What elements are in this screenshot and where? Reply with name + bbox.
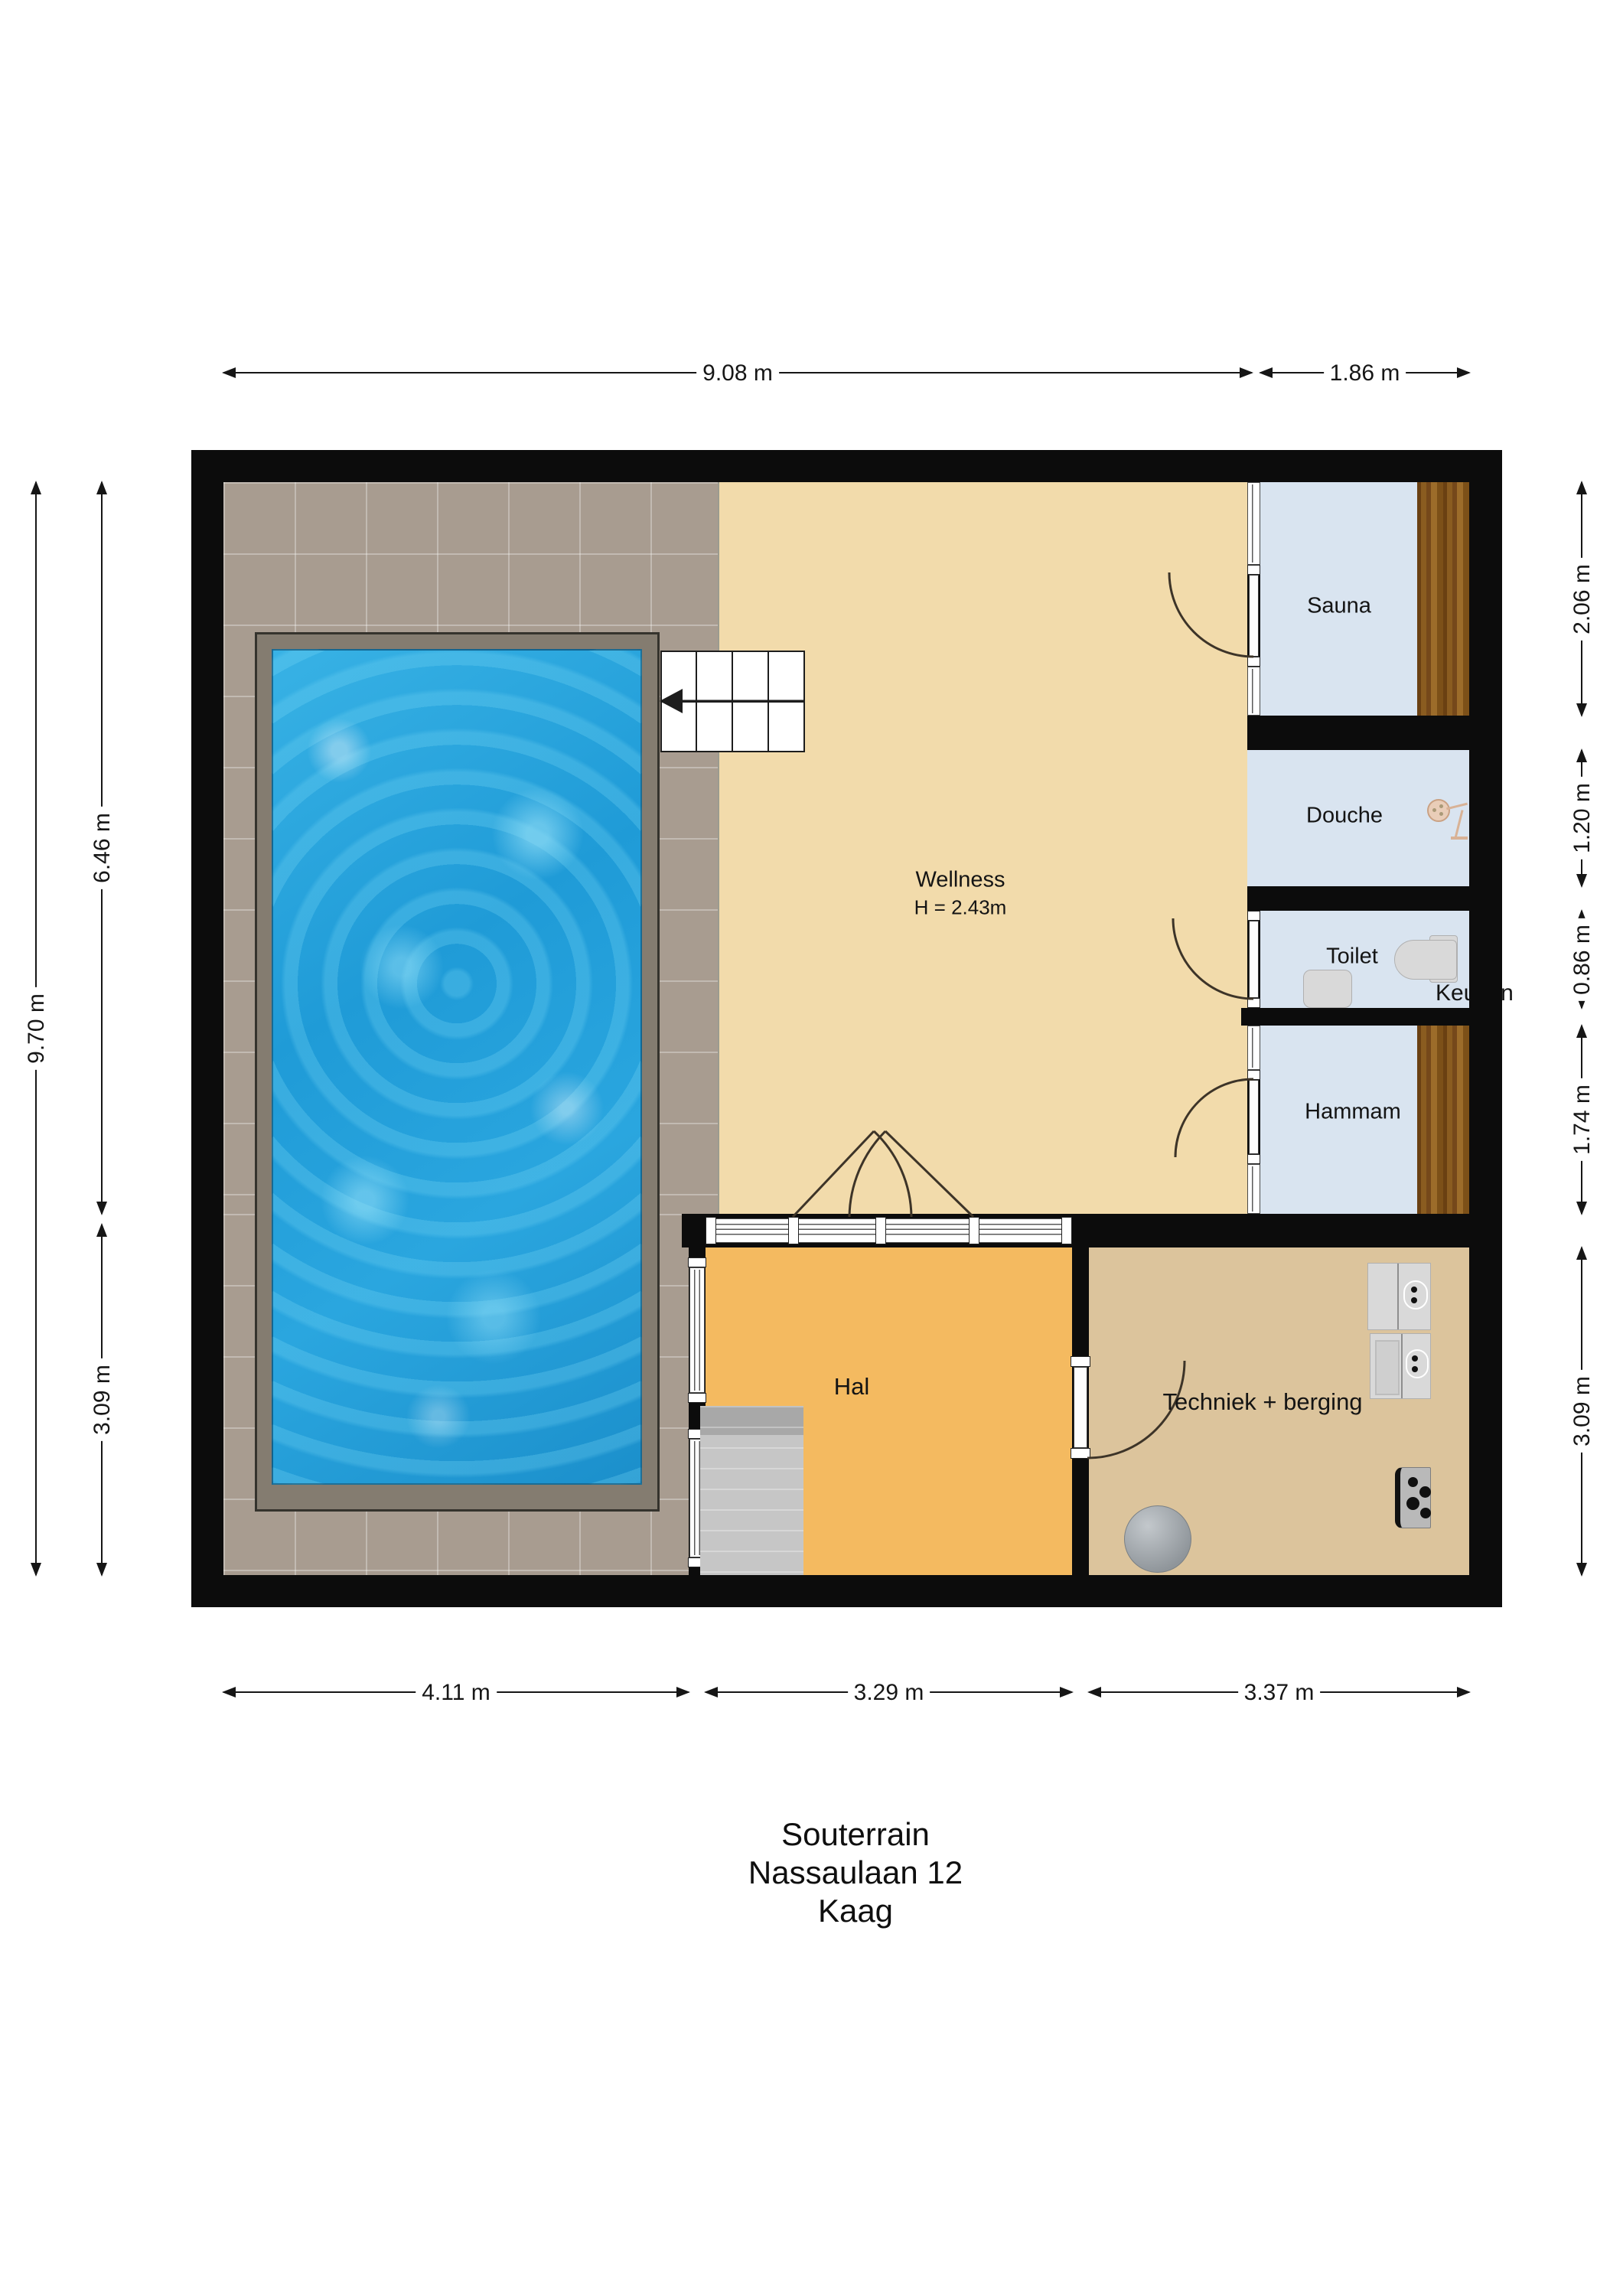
dim-label: 1.86 m bbox=[1324, 360, 1406, 386]
door-swing-overlay bbox=[0, 0, 1623, 2296]
city: Kaag bbox=[626, 1892, 1085, 1930]
double-door-right-arc bbox=[849, 1131, 885, 1217]
douche-label: Douche bbox=[1306, 804, 1383, 829]
dim-right-toilet: 0.86 m bbox=[1581, 911, 1582, 1008]
techniek-label: Techniek + berging bbox=[1162, 1388, 1362, 1416]
hammam-door-arc bbox=[1175, 1079, 1253, 1157]
dim-label: 9.08 m bbox=[696, 360, 779, 386]
toilet-label: Toilet bbox=[1326, 944, 1378, 970]
sauna-door-arc bbox=[1169, 572, 1253, 657]
double-door-right-leaf bbox=[885, 1131, 973, 1217]
dim-bottom-tech: 3.37 m bbox=[1089, 1691, 1469, 1693]
title-block: Souterrain Nassaulaan 12 Kaag bbox=[626, 1815, 1085, 1930]
dim-right-sauna: 2.06 m bbox=[1581, 482, 1582, 716]
dim-label: 3.09 m bbox=[90, 1358, 116, 1441]
toilet-door-arc bbox=[1173, 918, 1253, 999]
dim-left-upper: 6.46 m bbox=[101, 482, 103, 1214]
dim-label: 0.86 m bbox=[1569, 918, 1595, 1001]
floorplan-canvas: Keuken bbox=[0, 0, 1623, 2296]
wellness-height-note: H = 2.43m bbox=[914, 896, 1007, 920]
dim-label: 9.70 m bbox=[24, 987, 50, 1070]
address: Nassaulaan 12 bbox=[626, 1854, 1085, 1892]
dim-left-total: 9.70 m bbox=[35, 482, 37, 1575]
dim-bottom-pool: 4.11 m bbox=[223, 1691, 689, 1693]
dim-label: 3.09 m bbox=[1569, 1370, 1595, 1453]
dim-top-main: 9.08 m bbox=[223, 372, 1252, 373]
dim-right-douche: 1.20 m bbox=[1581, 750, 1582, 886]
dim-label: 2.06 m bbox=[1569, 558, 1595, 641]
dim-label: 3.29 m bbox=[848, 1680, 930, 1706]
dim-right-tech: 3.09 m bbox=[1581, 1247, 1582, 1575]
double-door-left-arc bbox=[874, 1131, 911, 1217]
sauna-label: Sauna bbox=[1307, 594, 1371, 619]
dim-label: 6.46 m bbox=[90, 807, 116, 889]
dim-left-lower: 3.09 m bbox=[101, 1225, 103, 1575]
stairs-direction-arrow-icon bbox=[660, 689, 683, 713]
wellness-label: Wellness bbox=[915, 868, 1005, 893]
dim-top-right: 1.86 m bbox=[1260, 372, 1469, 373]
dim-bottom-hal: 3.29 m bbox=[706, 1691, 1072, 1693]
dim-label: 3.37 m bbox=[1238, 1680, 1321, 1706]
double-door-left-leaf bbox=[793, 1131, 874, 1217]
dim-right-hammam: 1.74 m bbox=[1581, 1026, 1582, 1214]
floor-name: Souterrain bbox=[626, 1815, 1085, 1854]
hammam-label: Hammam bbox=[1305, 1100, 1401, 1125]
dim-label: 4.11 m bbox=[416, 1680, 497, 1706]
dim-label: 1.74 m bbox=[1569, 1078, 1595, 1161]
dim-label: 1.20 m bbox=[1569, 777, 1595, 859]
hal-label: Hal bbox=[834, 1373, 870, 1401]
